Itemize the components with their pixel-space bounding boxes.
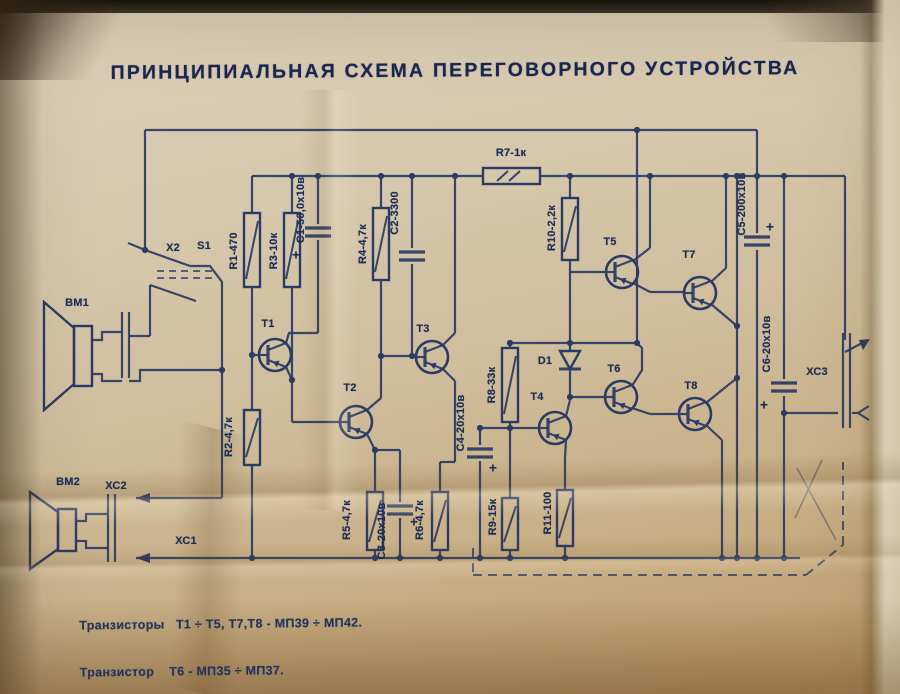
capacitor-label-c3: С3-20х10в (376, 503, 388, 560)
transistor-label-t6: Т6 (607, 363, 620, 375)
transistor-label-t4: Т4 (530, 391, 543, 403)
resistor-label-r11: R11-100 (542, 492, 554, 535)
polarity-plus-c5: + (766, 220, 774, 235)
speaker-label-bm2: ВМ2 (56, 476, 80, 488)
polarity-plus-c4: + (489, 461, 497, 476)
capacitor-label-c2: С2-3300 (389, 191, 401, 235)
transistor-label-t5: Т5 (603, 236, 616, 248)
notes-block: Транзисторы Т1 ÷ Т5, Т7,Т8 - МП39 ÷ МП42… (79, 584, 373, 694)
connector-label-xc2: ХС2 (105, 480, 127, 492)
resistor-label-r7: R7-1к (496, 147, 526, 159)
resistor-label-r5: R5-4,7к (341, 500, 353, 540)
connector-label-xc3: ХС3 (806, 366, 828, 378)
resistor-label-r6: R6-4,7к (414, 500, 426, 540)
resistor-label-r8: R8-33к (486, 367, 498, 404)
note-transistor-2: Транзистор Т6 - МП35 ÷ МП37. (80, 662, 371, 681)
capacitor-label-c4: С4-20х10в (455, 395, 467, 452)
polarity-plus-c6: + (760, 398, 768, 413)
resistor-label-r3: R3-10к (268, 233, 280, 270)
schematic-photo: ПРИНЦИПИАЛЬНАЯ СХЕМА ПЕРЕГОВОРНОГО УСТРО… (0, 0, 900, 694)
capacitor-label-c1: С1-50,0х10в (295, 177, 307, 243)
transistor-label-t2: Т2 (343, 382, 356, 394)
transistor-label-t7: Т7 (682, 249, 695, 261)
transistor-label-t1: Т1 (261, 318, 274, 330)
schematic-title: ПРИНЦИПИАЛЬНАЯ СХЕМА ПЕРЕГОВОРНОГО УСТРО… (111, 57, 800, 85)
resistor-label-r4: R4-4,7к (357, 224, 369, 264)
capacitor-label-c5: С5-200х10в (736, 172, 748, 235)
resistor-label-r9: R9-15к (487, 499, 499, 536)
speaker-label-bm1: ВМ1 (65, 297, 89, 309)
switch-label-s1: S1 (197, 240, 211, 252)
resistor-label-r2: R2-4,7к (223, 417, 235, 457)
transistor-label-t3: Т3 (416, 323, 429, 335)
resistor-label-r1: R1-470 (228, 232, 240, 269)
capacitor-label-c6: С6-20х10в (761, 316, 773, 373)
diode-label-d1: D1 (538, 355, 552, 367)
polarity-plus-c1: + (292, 248, 300, 263)
connector-label-xc1: ХС1 (175, 535, 197, 547)
transistor-label-t8: Т8 (684, 380, 697, 392)
connector-label-x2: Х2 (166, 242, 180, 254)
resistor-label-r10: R10-2,2к (546, 205, 558, 251)
note-transistors-1: Транзисторы Т1 ÷ Т5, Т7,Т8 - МП39 ÷ МП42… (79, 615, 370, 634)
